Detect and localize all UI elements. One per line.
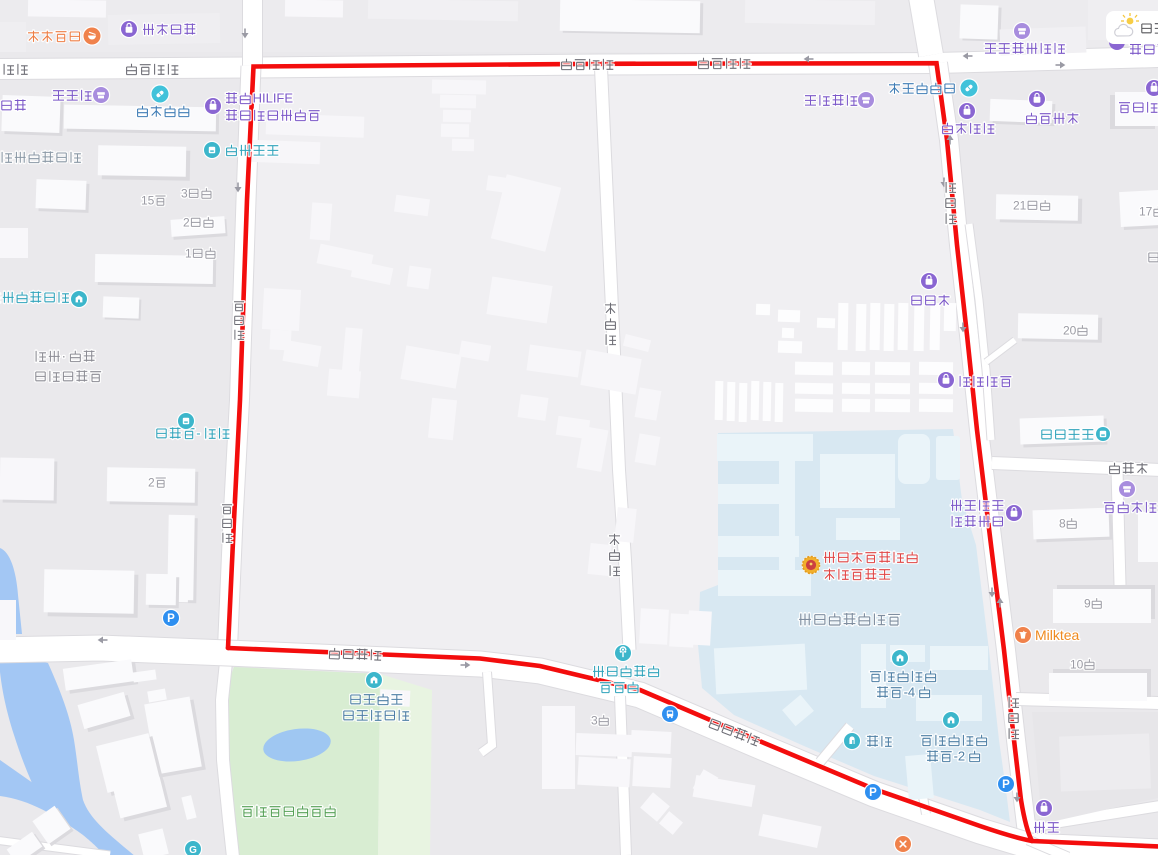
svg-text:-2: -2 bbox=[954, 749, 966, 764]
svg-text:P: P bbox=[869, 787, 877, 799]
svg-text:-4: -4 bbox=[904, 685, 916, 700]
svg-text:G: G bbox=[189, 845, 197, 855]
svg-text:17: 17 bbox=[1139, 204, 1153, 218]
svg-text:20: 20 bbox=[1063, 323, 1077, 337]
svg-text:1: 1 bbox=[185, 246, 192, 260]
svg-text:·: · bbox=[62, 349, 66, 364]
svg-text:P: P bbox=[1002, 779, 1010, 791]
svg-text:-: - bbox=[196, 426, 200, 441]
svg-text:3: 3 bbox=[181, 186, 188, 200]
svg-text:Milktea: Milktea bbox=[1035, 627, 1080, 643]
svg-text:2: 2 bbox=[148, 475, 155, 489]
svg-text:9: 9 bbox=[1084, 596, 1091, 610]
svg-text:8: 8 bbox=[1059, 516, 1066, 530]
svg-text:3: 3 bbox=[591, 713, 598, 727]
svg-text:P: P bbox=[167, 613, 175, 625]
svg-text:HILIFE: HILIFE bbox=[253, 91, 294, 106]
svg-text:10: 10 bbox=[1070, 657, 1084, 671]
svg-text:21: 21 bbox=[1013, 198, 1027, 212]
svg-text:15: 15 bbox=[141, 193, 155, 207]
svg-text:2: 2 bbox=[183, 215, 190, 229]
